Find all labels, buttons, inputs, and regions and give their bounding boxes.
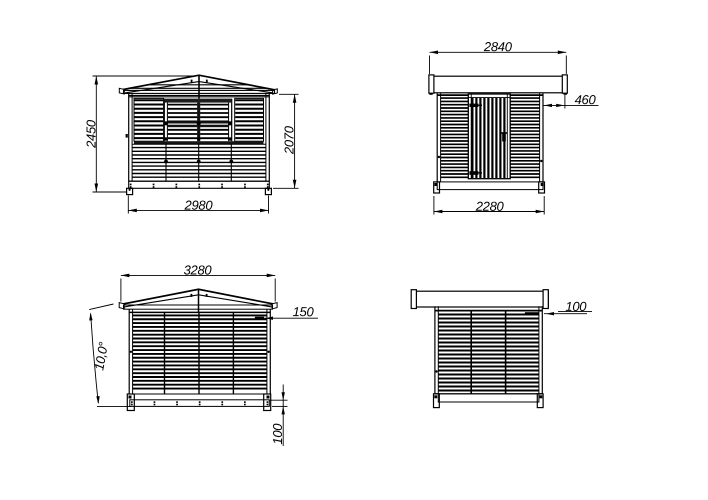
svg-text:460: 460 [575, 92, 597, 107]
svg-text:2280: 2280 [475, 199, 505, 214]
svg-text:2450: 2450 [83, 119, 98, 149]
svg-text:2980: 2980 [184, 198, 214, 213]
svg-text:100: 100 [565, 299, 587, 314]
svg-text:100: 100 [270, 423, 285, 445]
svg-text:2070: 2070 [282, 125, 297, 155]
svg-text:3280: 3280 [184, 262, 213, 277]
svg-text:2840: 2840 [483, 39, 513, 54]
svg-text:150: 150 [293, 304, 315, 319]
